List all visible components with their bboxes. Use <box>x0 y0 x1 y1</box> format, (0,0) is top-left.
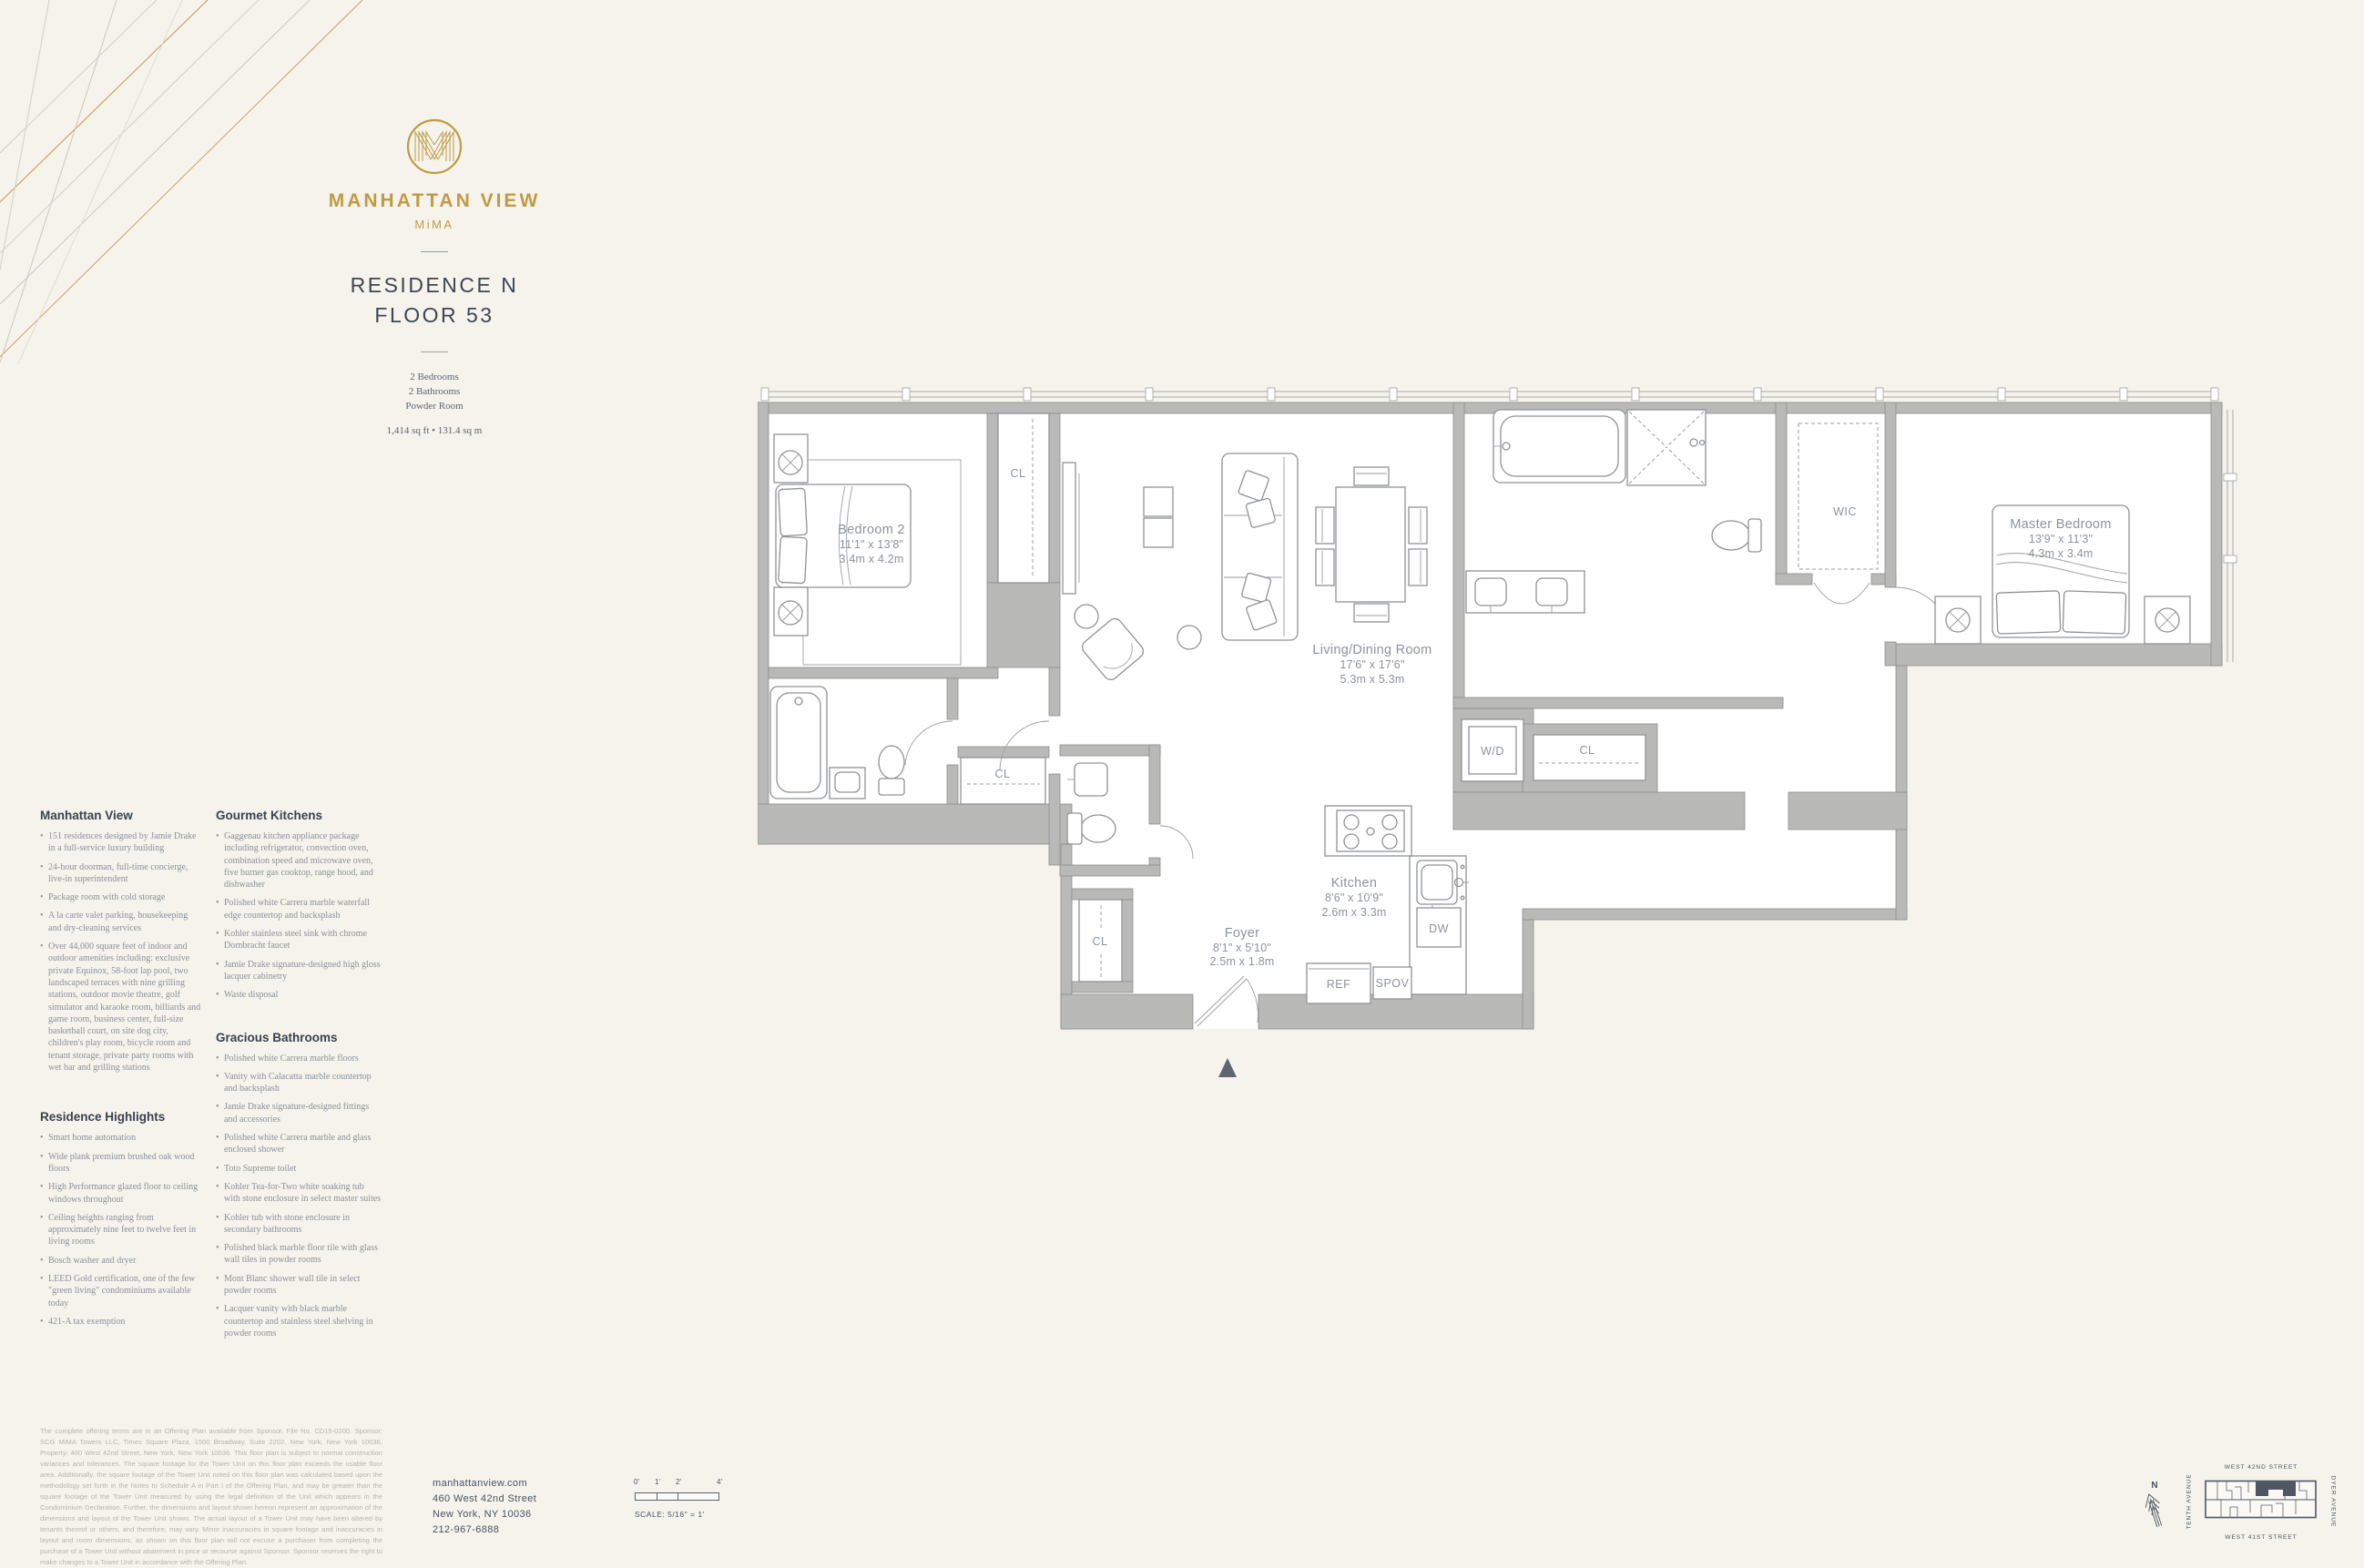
section-manhattan-view: Manhattan View 151 residences designed b… <box>40 809 202 1074</box>
kitchen-dims-m: 2.6m x 3.3m <box>1322 906 1387 919</box>
section-residence-highlights: Residence Highlights Smart home automati… <box>40 1110 202 1328</box>
street-label-bottom: WEST 41ST STREET <box>2225 1534 2297 1541</box>
section-title: Manhattan View <box>40 809 202 822</box>
feature-bedrooms: 2 Bedrooms <box>307 371 562 385</box>
dishwasher-label: DW <box>1429 922 1449 935</box>
bullet: Vanity with Calacatta marble countertop … <box>216 1071 382 1095</box>
section-gracious-bathrooms: Gracious Bathrooms Polished white Carrer… <box>216 1031 382 1340</box>
bedroom2-dims-m: 3.4m x 4.2m <box>840 553 904 565</box>
bedroom-closet-label: CL <box>1011 467 1026 480</box>
bullet: Polished white Carrera marble waterfall … <box>216 897 382 921</box>
bedroom2-label: Bedroom 2 <box>838 523 905 537</box>
walk-in-closet-label: WIC <box>1833 505 1857 518</box>
scale-label: SCALE: 5/16" = 1' <box>635 1510 726 1519</box>
bullet: Over 44,000 square feet of indoor and ou… <box>40 941 202 1074</box>
bullet-list: Gaggenau kitchen appliance package inclu… <box>216 830 382 1002</box>
washer-dryer-label: W/D <box>1481 745 1504 758</box>
bullet: 24-hour doorman, full-time concierge, li… <box>40 861 202 886</box>
bullet: Jamie Drake signature-designed fittings … <box>216 1101 382 1125</box>
scale-bar-segments <box>635 1492 719 1501</box>
bullet: Kohler stainless steel sink with chrome … <box>216 928 382 952</box>
section-title: Residence Highlights <box>40 1110 202 1124</box>
bullet: Waste disposal <box>216 989 382 1001</box>
address-line2: New York, NY 10036 <box>433 1507 536 1522</box>
kitchen-label: Kitchen <box>1331 876 1377 891</box>
hall-closet-label: CL <box>1580 744 1595 757</box>
speed-oven-label: SPOV <box>1376 977 1410 990</box>
website-link: manhattanview.com <box>433 1476 536 1492</box>
brand-subtitle: MiMA <box>307 218 562 231</box>
kitchen-dims-ft: 8'6" x 10'9" <box>1325 891 1383 904</box>
street-label-top: WEST 42ND STREET <box>2225 1464 2298 1471</box>
feature-powder-room: Powder Room <box>307 400 562 414</box>
scale-tick-1: 1' <box>655 1478 660 1486</box>
living-dims-m: 5.3m x 5.3m <box>1340 673 1405 686</box>
bullet: Jamie Drake signature-designed high glos… <box>216 959 382 983</box>
foyer-dims-ft: 8'1" x 5'10" <box>1213 942 1271 954</box>
bullet-list: Polished white Carrera marble floors Van… <box>216 1053 382 1340</box>
location-map: WEST 42ND STREET WEST 41ST STREET TENTH … <box>2184 1461 2339 1543</box>
floorplan-brochure-page: { "brand": {"name": "MANHATTAN VIEW", "s… <box>0 0 2364 1541</box>
bullet: Smart home automation <box>40 1132 202 1144</box>
bullet: A la carte valet parking, housekeeping a… <box>40 910 202 934</box>
refrigerator-label: REF <box>1327 978 1351 991</box>
bullet: Package room with cold storage <box>40 891 202 903</box>
scale-segment <box>657 1492 678 1501</box>
bedroom2-dims-ft: 11'1" x 13'8" <box>840 538 903 551</box>
bullet: Kohler tub with stone enclosure in secon… <box>216 1212 382 1237</box>
master-dims-ft: 13'9" x 11'3" <box>2029 533 2093 545</box>
header-divider-top <box>421 251 448 252</box>
north-label: N <box>2142 1481 2167 1491</box>
bullet: Wide plank premium brushed oak wood floo… <box>40 1151 202 1176</box>
bullet: 421-A tax exemption <box>40 1316 202 1328</box>
features-column-2: Gourmet Kitchens Gaggenau kitchen applia… <box>216 809 382 1346</box>
address-line1: 460 West 42nd Street <box>433 1492 536 1507</box>
bullet: Polished white Carrera marble and glass … <box>216 1132 382 1156</box>
floor-title: FLOOR 53 <box>307 300 562 331</box>
bullet: Gaggenau kitchen appliance package inclu… <box>216 830 382 891</box>
bullet: High Performance glazed floor to ceiling… <box>40 1181 202 1206</box>
scale-segment <box>678 1492 719 1501</box>
scale-tick-4: 4' <box>717 1478 722 1486</box>
scale-tick-2: 2' <box>676 1478 681 1486</box>
bullet-list: Smart home automation Wide plank premium… <box>40 1132 202 1328</box>
brand-name: MANHATTAN VIEW <box>307 190 562 212</box>
lower-hall-closet-label: CL <box>995 768 1011 780</box>
bullet: Toto Supreme toilet <box>216 1163 382 1175</box>
window-band-top <box>761 388 2218 401</box>
scale-tick-0: 0' <box>634 1478 639 1486</box>
foyer-dims-m: 2.5m x 1.8m <box>1210 955 1275 968</box>
bullet: Ceiling heights ranging from approximate… <box>40 1212 202 1248</box>
brand-logo-m-icon <box>404 117 464 177</box>
compass: N <box>2142 1481 2167 1537</box>
header-divider-bottom <box>421 351 448 352</box>
scale-ticks: 0' 1' 2' 4' <box>635 1478 726 1489</box>
section-title: Gourmet Kitchens <box>216 809 382 822</box>
features-column-1: Manhattan View 151 residences designed b… <box>40 809 202 1334</box>
section-title: Gracious Bathrooms <box>216 1031 382 1044</box>
street-label-right: DYER AVENUE <box>2330 1476 2337 1528</box>
area-measurements: 1,414 sq ft • 131.4 sq m <box>307 425 562 436</box>
foyer-label: Foyer <box>1225 926 1260 941</box>
scale-bar: 0' 1' 2' 4' SCALE: 5/16" = 1' <box>635 1478 726 1519</box>
section-gourmet-kitchens: Gourmet Kitchens Gaggenau kitchen applia… <box>216 809 382 1002</box>
street-label-left: TENTH AVENUE <box>2186 1473 2193 1529</box>
contact-block: manhattanview.com 460 West 42nd Street N… <box>433 1476 536 1538</box>
scale-segment <box>635 1492 657 1501</box>
master-dims-m: 4.3m x 3.4m <box>2029 547 2094 560</box>
living-dims-ft: 17'6" x 17'6" <box>1340 658 1404 671</box>
bullet: Polished black marble floor tile with gl… <box>216 1242 382 1267</box>
legal-disclaimer: The complete offering terms are in an Of… <box>40 1426 382 1568</box>
feature-bathrooms: 2 Bathrooms <box>307 385 562 400</box>
bullet: Polished white Carrera marble floors <box>216 1053 382 1064</box>
living-label: Living/Dining Room <box>1312 643 1432 657</box>
floorplan-drawing: Bedroom 2 11'1" x 13'8" 3.4m x 4.2m Livi… <box>758 386 2251 1096</box>
foyer-closet-label: CL <box>1093 935 1108 948</box>
bullet: Mont Blanc shower wall tile in select po… <box>216 1273 382 1298</box>
phone-number: 212-967-6888 <box>433 1522 536 1538</box>
bullet: LEED Gold certification, one of the few … <box>40 1273 202 1309</box>
entry-arrow-marker <box>1218 1058 1237 1077</box>
master-label: Master Bedroom <box>2010 517 2111 532</box>
bullet: Lacquer vanity with black marble counter… <box>216 1303 382 1339</box>
brand-header: MANHATTAN VIEW MiMA RESIDENCE N FLOOR 53… <box>307 117 562 436</box>
bullet: 151 residences designed by Jamie Drake i… <box>40 830 202 855</box>
bullet: Bosch washer and dryer <box>40 1255 202 1267</box>
window-band-right <box>2224 410 2237 662</box>
residence-title: RESIDENCE N <box>307 270 562 300</box>
north-arrow-icon <box>2142 1491 2167 1532</box>
bullet-list: 151 residences designed by Jamie Drake i… <box>40 830 202 1074</box>
bullet: Kohler Tea-for-Two white soaking tub wit… <box>216 1181 382 1206</box>
city-block-map <box>2205 1480 2318 1520</box>
